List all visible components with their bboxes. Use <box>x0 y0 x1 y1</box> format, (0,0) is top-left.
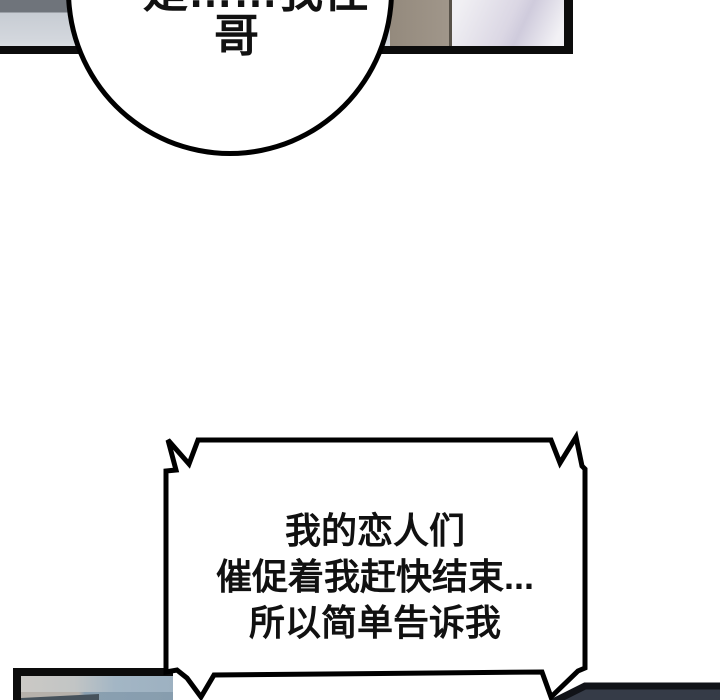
comic-page: 是……我住 哥 我的恋人们 催促着我赶快结束... 所以简单告诉我 <box>0 0 720 700</box>
ellipse-bubble-text-line2: 哥 <box>214 13 259 58</box>
burst-bubble-text-line2: 催促着我赶快结束... <box>166 554 584 600</box>
burst-bubble-text: 我的恋人们 催促着我赶快结束... 所以简单告诉我 <box>166 508 584 646</box>
burst-bubble-text-line1: 我的恋人们 <box>166 508 584 554</box>
burst-bubble-text-line3: 所以简单告诉我 <box>166 600 584 646</box>
bottom-right-panel <box>545 686 720 700</box>
